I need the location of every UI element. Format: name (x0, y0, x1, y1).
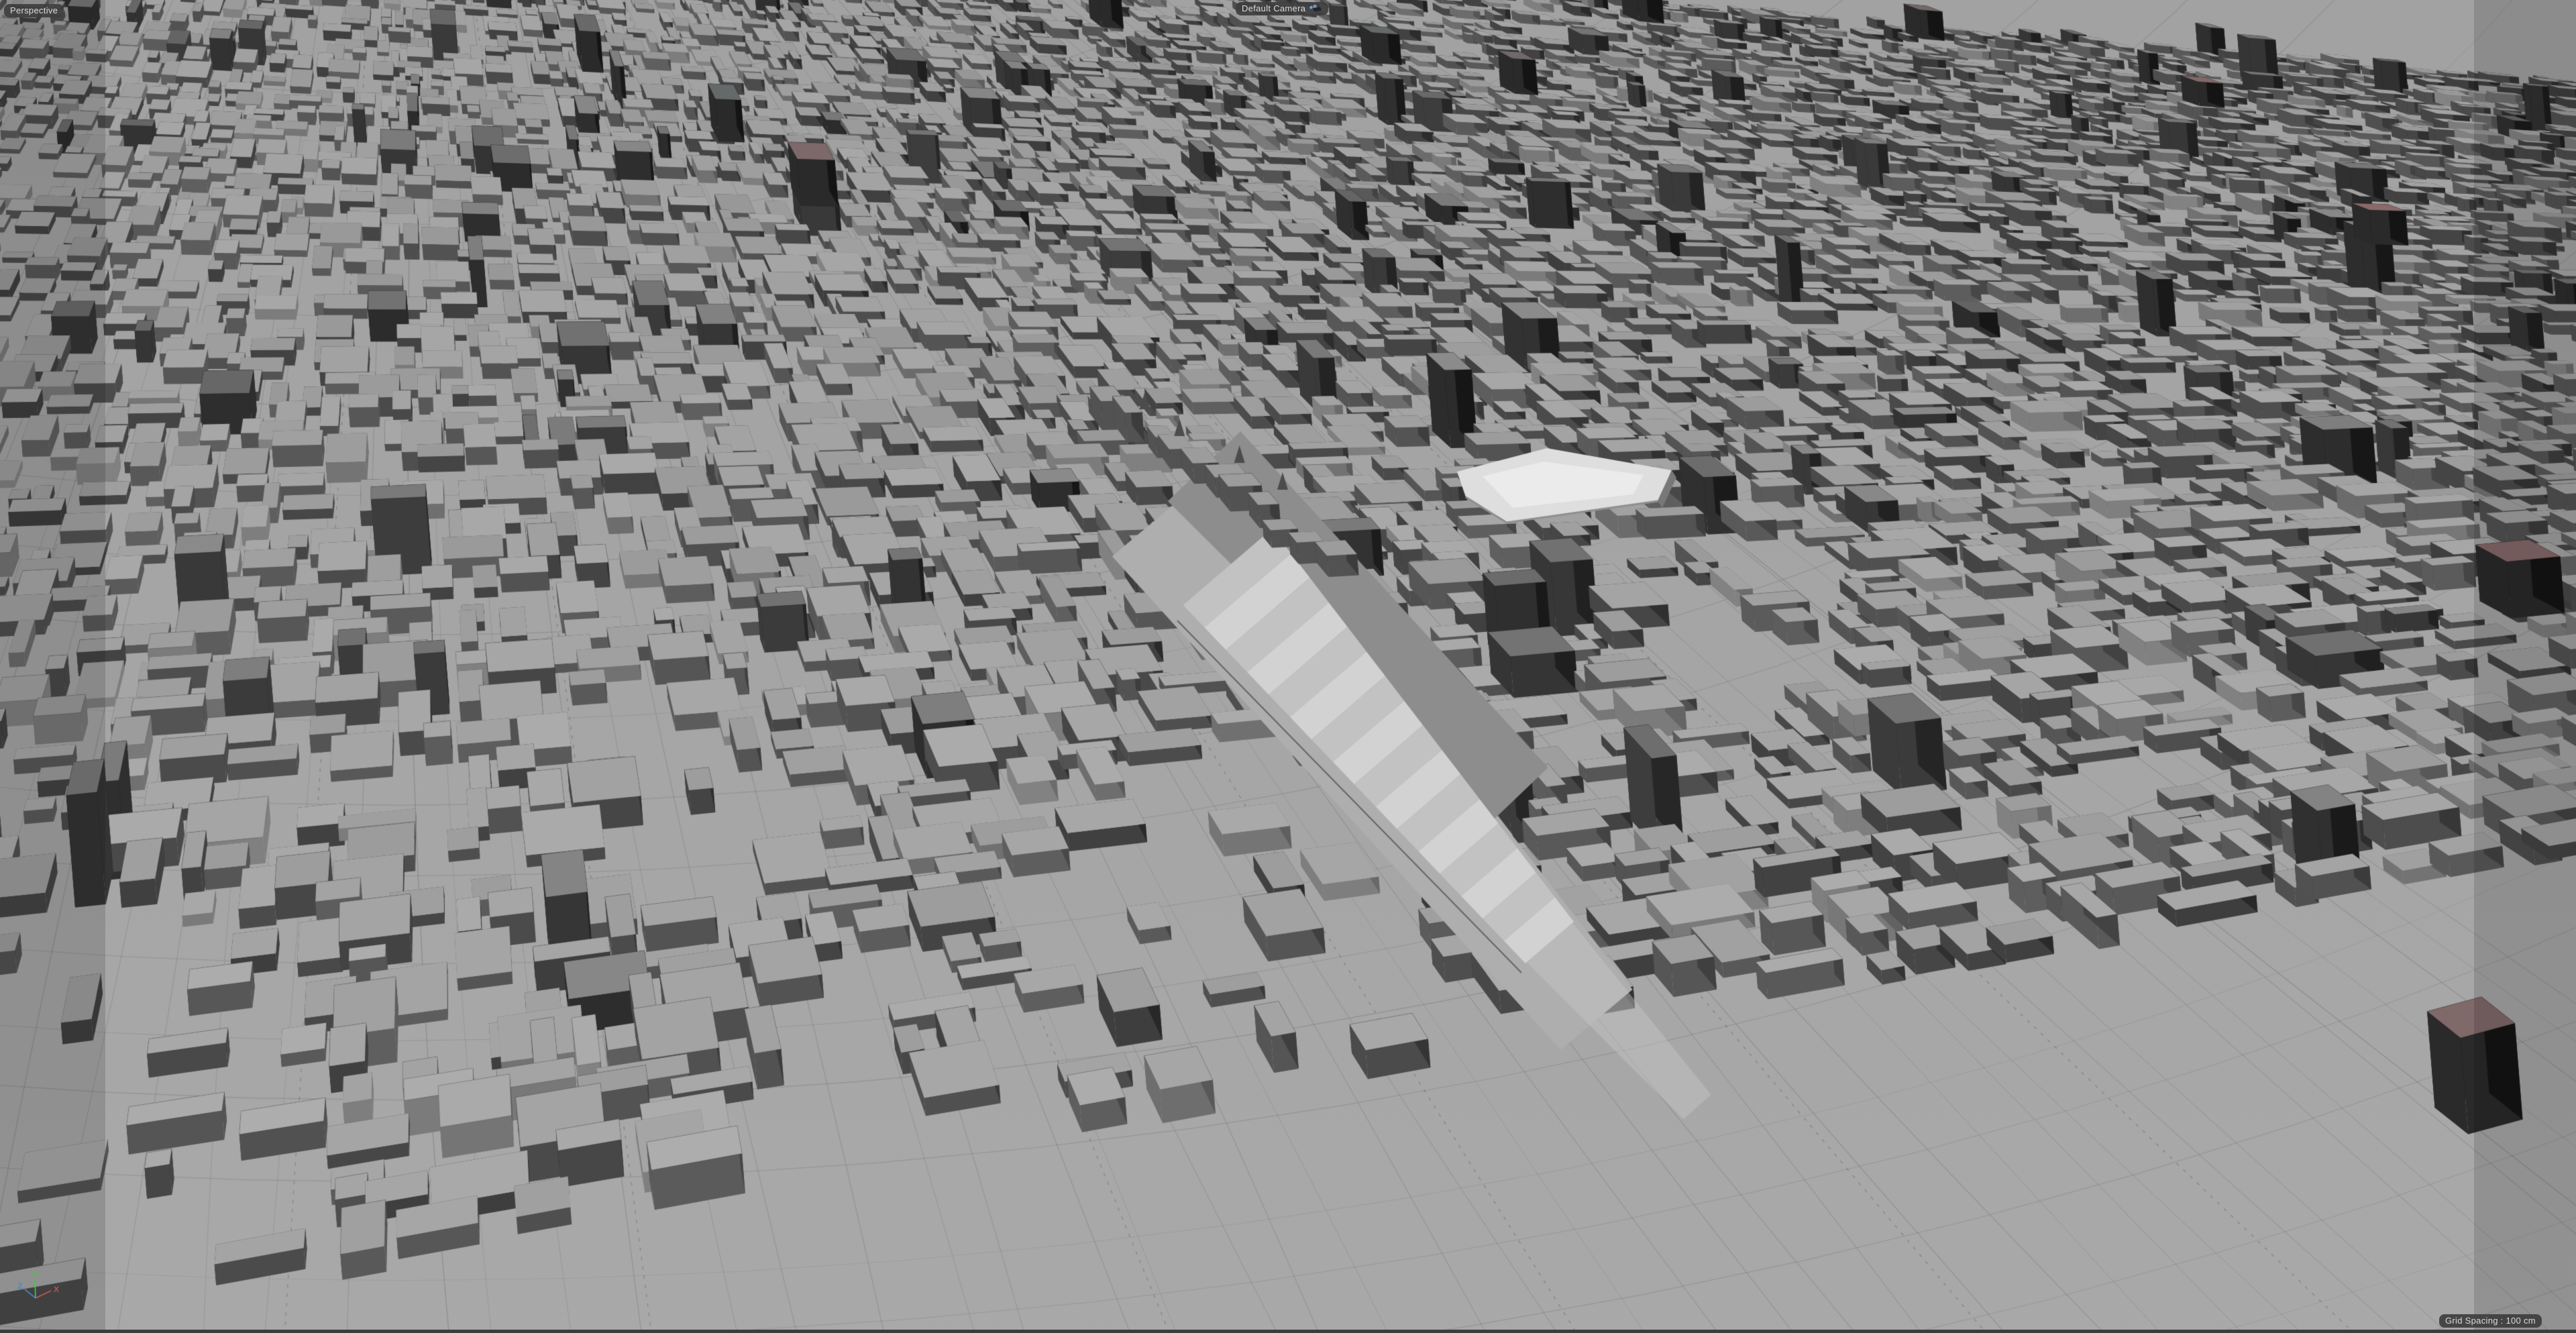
camera-label[interactable]: Default Camera (1236, 2, 1328, 15)
camera-icon[interactable] (1309, 4, 1322, 13)
axis-gizmo: Y Z X (4, 1270, 78, 1310)
camera-label-text: Default Camera (1242, 3, 1305, 13)
axis-y-label: Y (32, 1270, 38, 1279)
axis-y-line (35, 1279, 36, 1298)
view-mode-label[interactable]: Perspective (4, 4, 64, 17)
axis-x-label: X (54, 1285, 59, 1294)
axis-z-label: Z (17, 1281, 22, 1291)
city-render-canvas[interactable] (0, 0, 2576, 1333)
viewport-3d[interactable]: Perspective Default Camera Grid Spacing … (0, 0, 2576, 1333)
window-edge-strip (0, 1330, 2576, 1333)
axis-z-line (25, 1289, 36, 1298)
axis-x-line (36, 1291, 51, 1298)
grid-spacing-label: Grid Spacing : 100 cm (2439, 1314, 2542, 1328)
